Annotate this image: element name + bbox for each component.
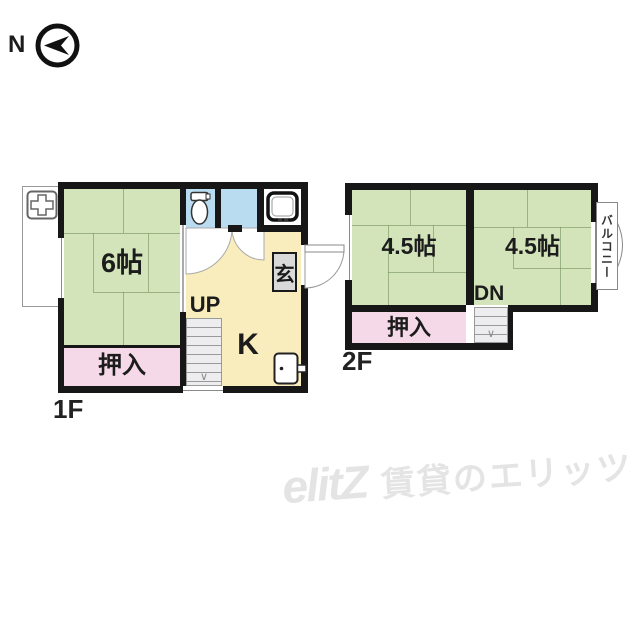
north-label: N [8,33,25,57]
watermark: elitZ 賃貸のエリッツ [281,436,634,514]
watermark-text: 賃貸のエリッツ [379,440,634,506]
balcony-outline: バルコニー [596,202,618,290]
kitchen-label: K [230,330,266,360]
wall [58,182,308,189]
wall [64,345,180,348]
window [345,215,352,280]
wall [257,189,264,232]
wall [58,182,64,238]
watermark-logo: elitZ [281,454,369,514]
dn-label: DN [474,283,512,304]
floor-label-2f: 2F [342,346,372,377]
sliding-door [182,225,184,312]
floor-label-1f: 1F [53,394,83,425]
floorplan-page: { "compass": { "label": "N" }, "floor1":… [0,0,640,640]
door-arc-washroom [232,228,264,260]
wall [223,386,308,393]
bathtub-icon [266,191,299,223]
balcony: バルコニー [596,202,632,290]
room-45-right-label: 4.5帖 [474,235,591,258]
washing-machine-icon [26,190,58,220]
tatami-line [474,227,591,228]
stairs-down: ∨ [474,307,508,343]
wall [508,305,598,312]
closet-2f-label: 押入 [352,317,466,339]
tatami-line [123,189,124,233]
tatami-line [388,272,466,273]
window [183,386,223,393]
tatami-line [93,292,180,293]
closet-1f-label: 押入 [64,354,180,378]
tatami-line [513,268,591,269]
wall [466,190,474,305]
up-label: UP [186,294,224,316]
tatami-line [123,292,124,345]
washroom [221,189,257,228]
floorplan-2f: ∨ DN 4.5帖 4.5帖 押入 [345,183,598,350]
balcony-label: バルコニー [599,214,616,279]
wall [180,189,186,225]
wall [228,225,242,232]
tatami-line [352,225,466,226]
north-compass-icon [35,23,80,68]
floorplan-1f: 玄 UP ∨ 6帖 押入 K [58,182,308,393]
wall [345,280,352,350]
room-45-left-label: 4.5帖 [352,235,466,258]
wall [215,189,221,228]
wall [58,386,183,393]
wall [345,183,598,190]
room-6jo-label: 6帖 [64,250,180,277]
tatami-line [560,268,561,305]
wall [352,305,466,312]
wall [264,225,301,232]
wall [345,183,352,215]
tatami-line [410,190,411,225]
door-arc-toilet [186,228,264,276]
toilet-icon [189,191,213,226]
genkan-label: 玄 [275,258,295,287]
genkan-box: 玄 [272,252,297,292]
tatami-line [388,272,389,305]
tatami-line [527,190,528,227]
stairs-arrow-icon: ∨ [487,329,495,340]
wall [301,182,308,245]
stairs-up: ∨ [186,318,222,386]
sink-icon [273,352,307,385]
stairs-arrow-icon: ∨ [200,372,208,383]
tatami-line [64,233,180,234]
entrance-door-arc [302,243,348,291]
